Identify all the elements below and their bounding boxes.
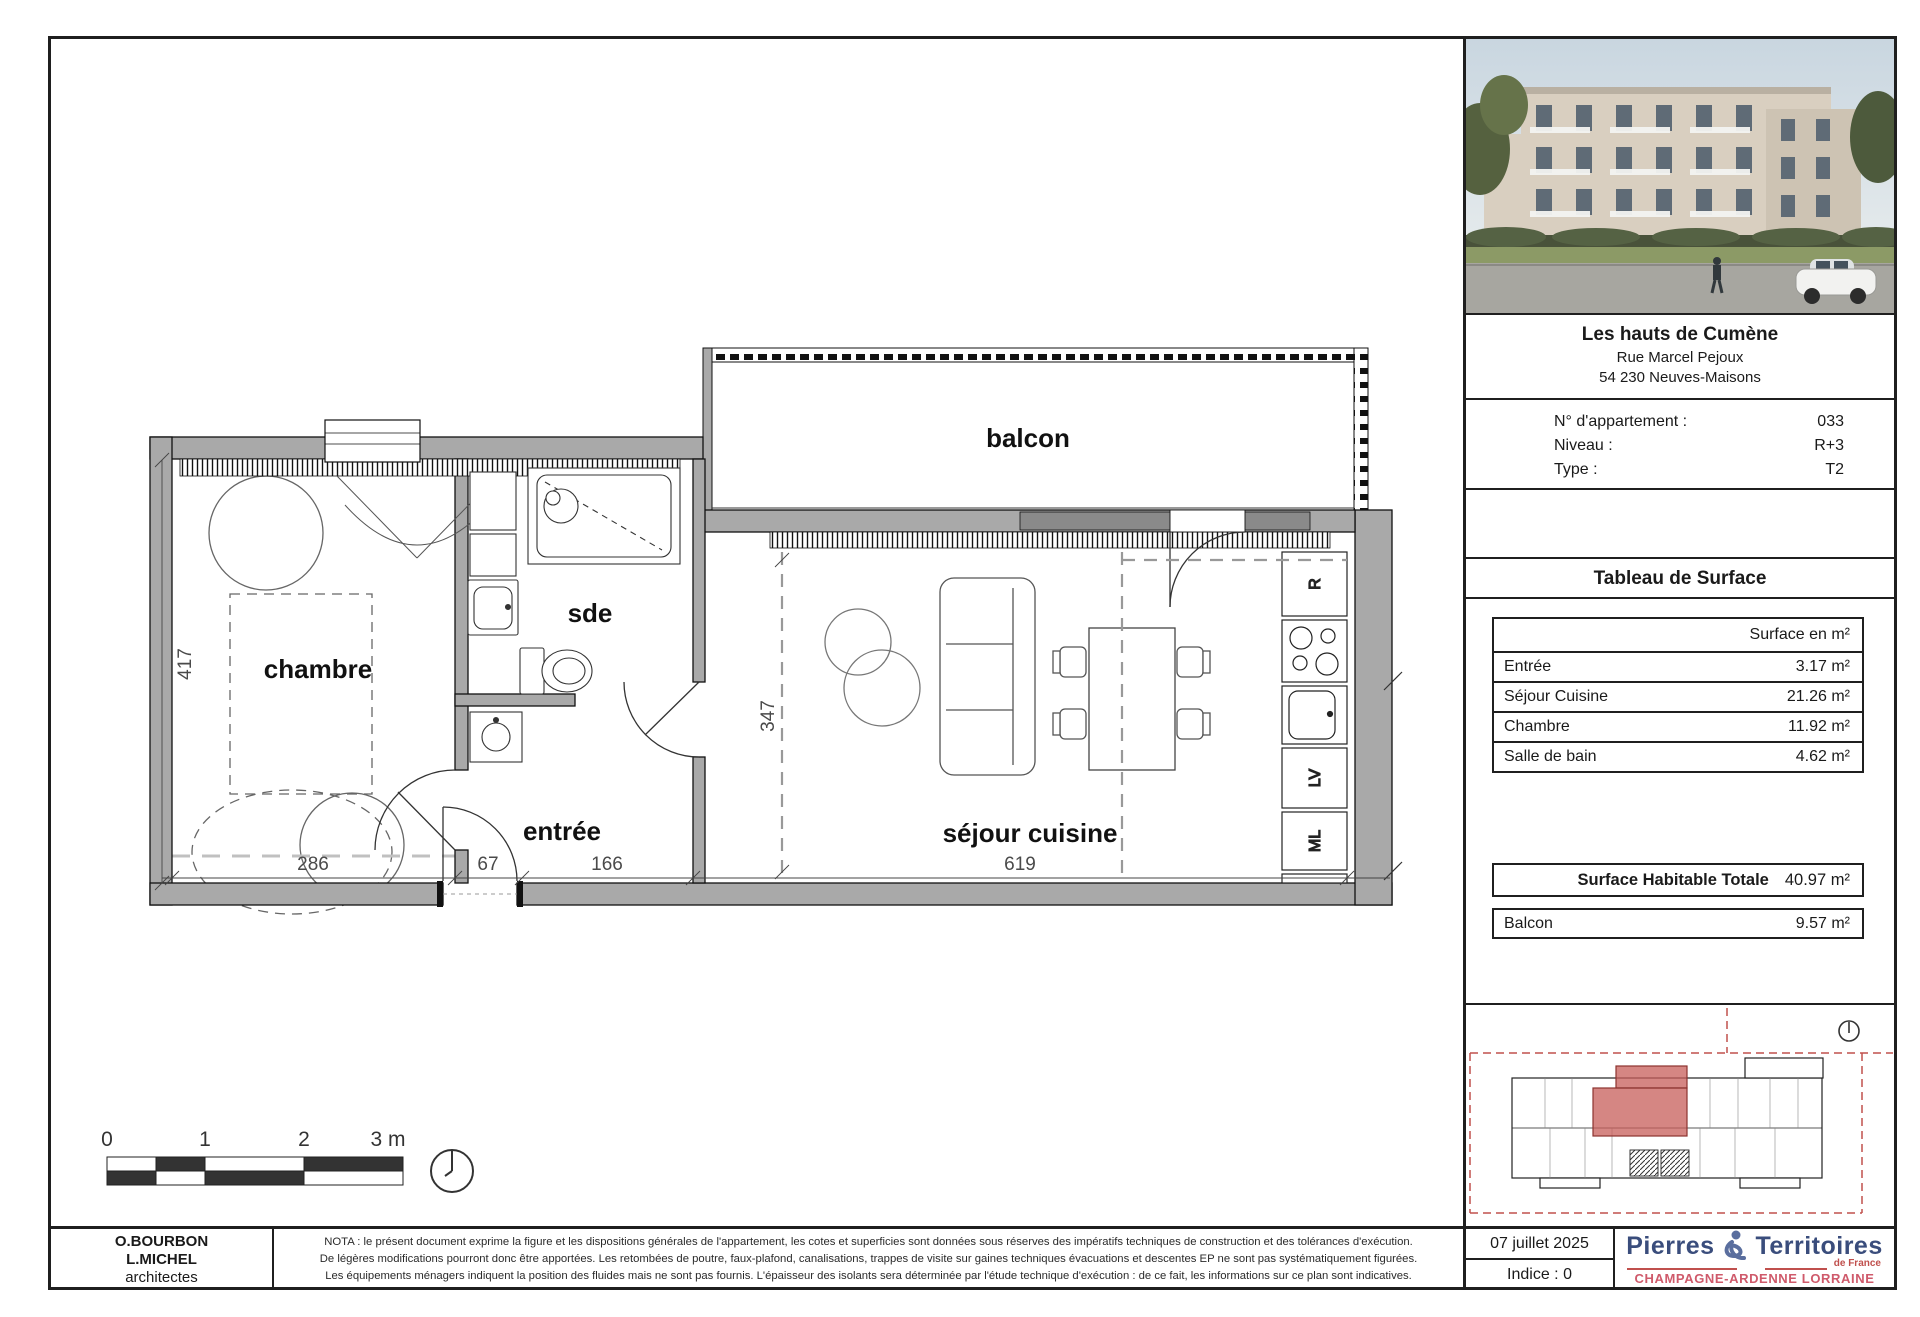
logo-rule-left xyxy=(1627,1268,1737,1270)
room-surface: 4.62 m² xyxy=(1796,743,1850,771)
project-name: Les hauts de Cumène xyxy=(1466,324,1894,346)
architects-caption: architectes xyxy=(51,1269,272,1287)
project-street: Rue Marcel Pejoux xyxy=(1466,349,1894,366)
building-photo xyxy=(1466,39,1894,313)
apartment-info-block: N° d'appartement : 033 Niveau : R+3 Type… xyxy=(1466,400,1894,490)
table-row: Séjour Cuisine 21.26 m² xyxy=(1494,681,1862,711)
room-surface: 21.26 m² xyxy=(1787,683,1850,711)
plan-sheet: Les hauts de Cumène Rue Marcel Pejoux 54… xyxy=(0,0,1920,1317)
level-value: R+3 xyxy=(1814,434,1844,458)
level-label: Niveau : xyxy=(1554,434,1613,458)
architect-2: L.MICHEL xyxy=(51,1251,272,1269)
room-name: Salle de bain xyxy=(1504,743,1597,771)
logo-brand-2: Territoires xyxy=(1755,1232,1882,1260)
date-index-block: 07 juillet 2025 Indice : 0 xyxy=(1463,1229,1615,1287)
room-surface: 11.92 m² xyxy=(1788,713,1850,741)
room-name: Entrée xyxy=(1504,653,1551,681)
key-plan-box xyxy=(1466,1003,1894,1226)
architect-1: O.BOURBON xyxy=(51,1233,272,1251)
nota-text: NOTA : le présent document exprime la fi… xyxy=(274,1229,1463,1287)
table-row: Entrée 3.17 m² xyxy=(1494,651,1862,681)
apartment-number-label: N° d'appartement : xyxy=(1554,410,1687,434)
balcony-value: 9.57 m² xyxy=(1796,915,1850,933)
room-name: Séjour Cuisine xyxy=(1504,683,1608,711)
nota-line-2: De légères modifications pourront donc ê… xyxy=(274,1251,1463,1268)
nota-line-1: NOTA : le présent document exprime la fi… xyxy=(274,1234,1463,1251)
room-name: Chambre xyxy=(1504,713,1570,741)
total-surface-value: 40.97 m² xyxy=(1785,871,1850,890)
plan-index: Indice : 0 xyxy=(1466,1260,1613,1289)
footer-band: O.BOURBON L.MICHEL architectes NOTA : le… xyxy=(48,1226,1897,1290)
balcony-surface-row: Balcon 9.57 m² xyxy=(1492,908,1864,939)
table-row: Salle de bain 4.62 m² xyxy=(1494,741,1862,771)
surface-table: Surface en m² Entrée 3.17 m² Séjour Cuis… xyxy=(1492,617,1864,773)
logo-subtitle: de France xyxy=(1834,1258,1881,1269)
surface-unit-header: Surface en m² xyxy=(1494,619,1862,651)
project-city: 54 230 Neuves-Maisons xyxy=(1466,369,1894,386)
total-surface-row: Surface Habitable Totale 40.97 m² xyxy=(1492,863,1864,897)
title-panel: Les hauts de Cumène Rue Marcel Pejoux 54… xyxy=(1463,39,1894,1226)
type-label: Type : xyxy=(1554,458,1598,482)
room-surface: 3.17 m² xyxy=(1796,653,1850,681)
apartment-number-value: 033 xyxy=(1817,410,1844,434)
ampersand-figure-icon xyxy=(1722,1230,1748,1260)
total-surface-label: Surface Habitable Totale xyxy=(1578,871,1769,890)
surface-table-title: Tableau de Surface xyxy=(1466,557,1894,599)
table-row: Chambre 11.92 m² xyxy=(1494,711,1862,741)
type-row: Type : T2 xyxy=(1554,458,1844,482)
level-row: Niveau : R+3 xyxy=(1554,434,1844,458)
building-rendering xyxy=(1466,39,1894,313)
nota-line-3: Les équipements ménagers indiquent la po… xyxy=(274,1268,1463,1285)
company-logo: Pierres Territoires de France CHAMPAGNE-… xyxy=(1615,1229,1894,1287)
architects-block: O.BOURBON L.MICHEL architectes xyxy=(51,1229,274,1287)
logo-rule-right xyxy=(1765,1268,1827,1270)
type-value: T2 xyxy=(1825,458,1844,482)
plan-date: 07 juillet 2025 xyxy=(1466,1229,1613,1260)
apartment-number-row: N° d'appartement : 033 xyxy=(1554,410,1844,434)
logo-brand-1: Pierres xyxy=(1626,1232,1714,1260)
balcony-label: Balcon xyxy=(1504,915,1553,933)
project-title-block: Les hauts de Cumène Rue Marcel Pejoux 54… xyxy=(1466,313,1894,400)
logo-region: CHAMPAGNE-ARDENNE LORRAINE xyxy=(1615,1271,1894,1286)
